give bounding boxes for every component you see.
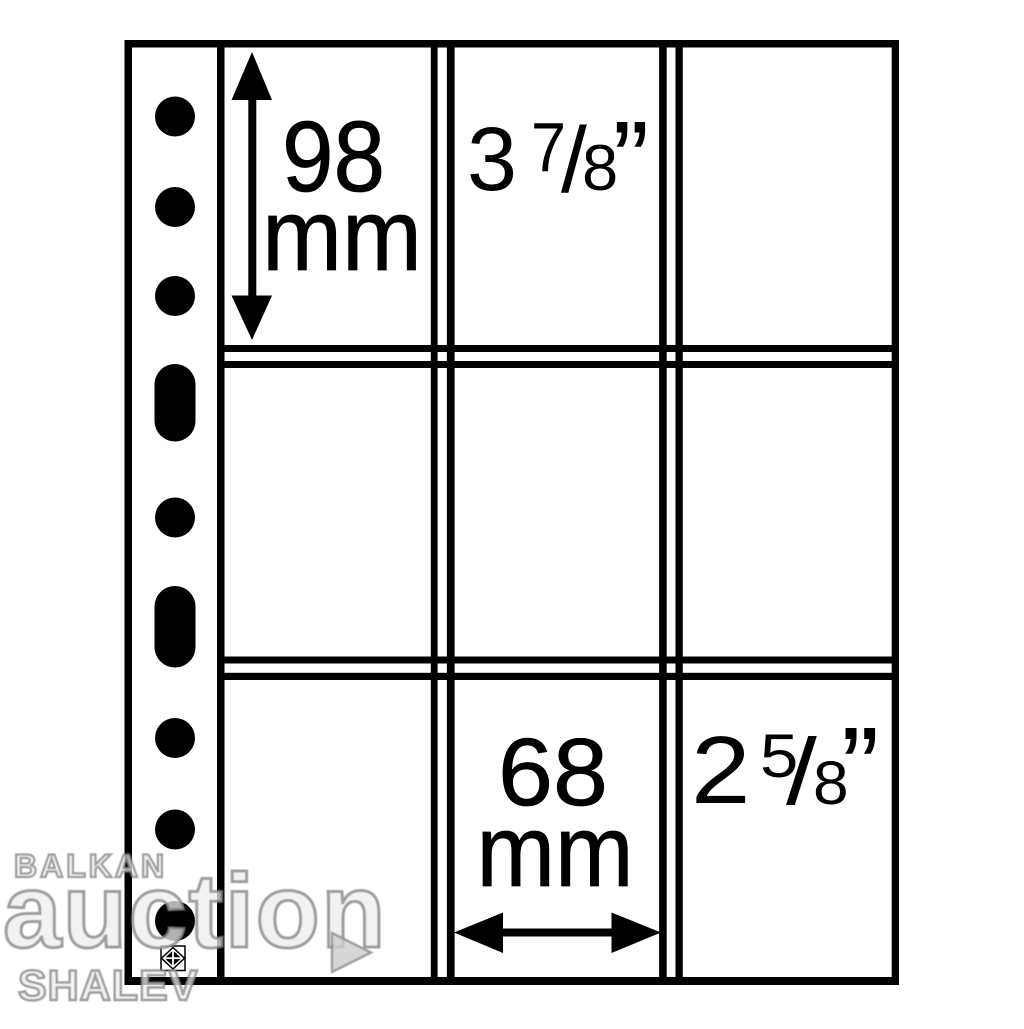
svg-text:3: 3 <box>467 110 517 210</box>
svg-text:”: ” <box>613 99 650 222</box>
svg-text:mm: mm <box>476 793 633 907</box>
svg-text:2: 2 <box>691 716 751 824</box>
svg-text:auction: auction <box>3 853 387 970</box>
svg-text:mm: mm <box>262 177 422 291</box>
svg-text:”: ” <box>841 705 879 833</box>
svg-text:SHALEV: SHALEV <box>18 962 198 1010</box>
